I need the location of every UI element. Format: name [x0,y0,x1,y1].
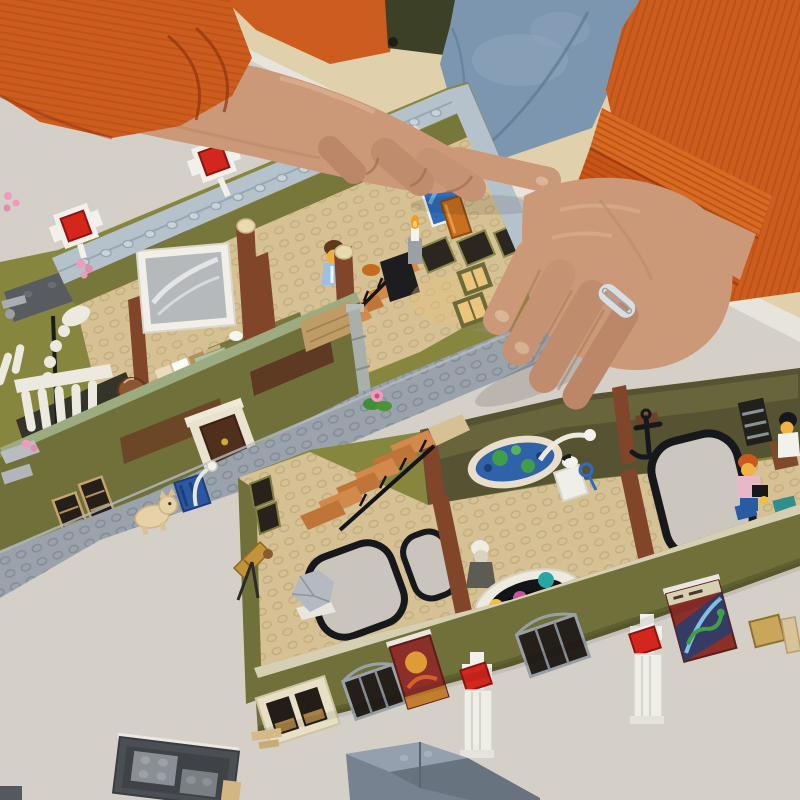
orange-bowl [362,264,380,276]
post-cap [237,219,255,233]
pillar-red-tile [629,614,664,724]
shirt-button [388,37,398,47]
lego-museum-photo [0,0,800,800]
pillar-red-tile [460,652,494,758]
photo-canvas [0,0,800,800]
dark-piece [0,786,22,800]
framed-picture [137,243,236,333]
white-cup [229,331,243,341]
camera [752,485,768,497]
post-cap [335,245,353,259]
curled-finger [330,148,354,172]
